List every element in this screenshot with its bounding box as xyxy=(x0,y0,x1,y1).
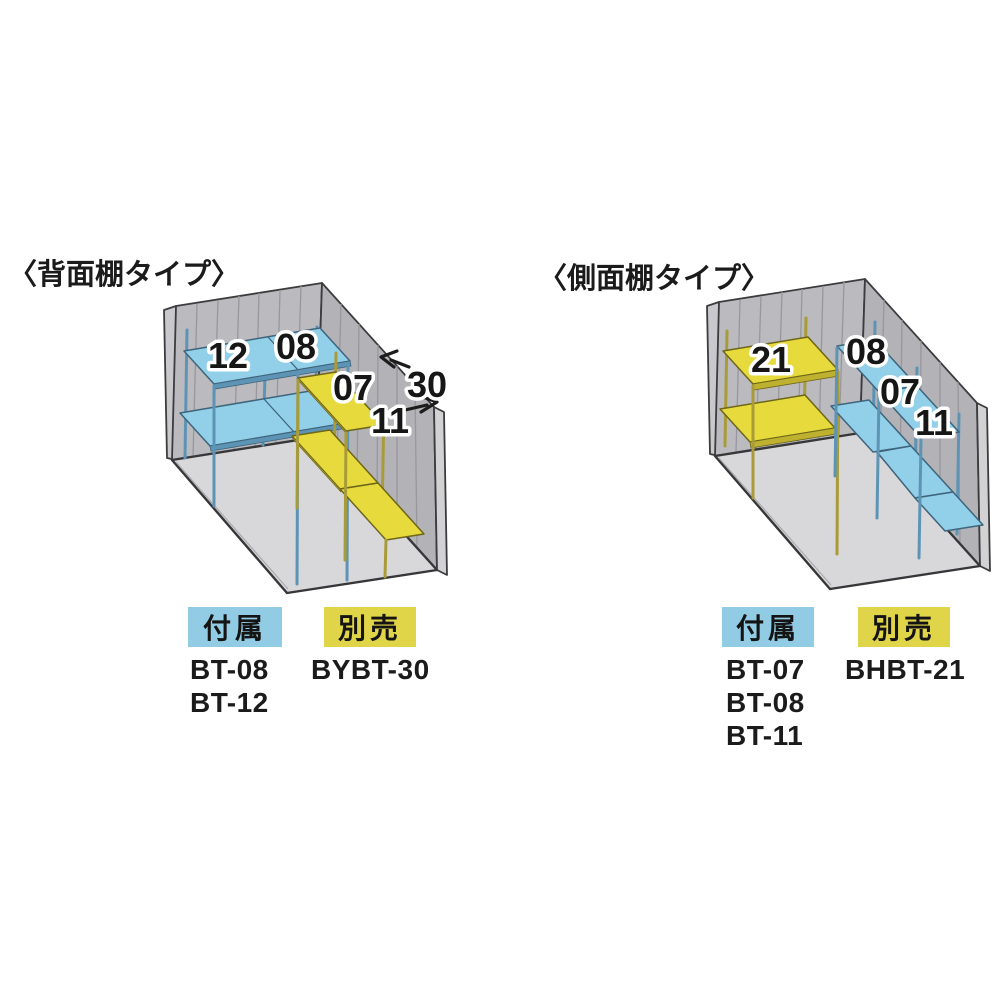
included-codes: BT-08 BT-12 xyxy=(190,653,269,719)
sold-separately-badge: 別売 xyxy=(324,607,416,647)
sold-separately-codes: BYBT-30 xyxy=(311,653,430,686)
included-code: BT-12 xyxy=(190,686,269,719)
sold-separately-badge: 別売 xyxy=(858,607,950,647)
included-badge: 付属 xyxy=(188,607,282,647)
sold-separately-code: BHBT-21 xyxy=(845,653,965,686)
shelf-label-07: 07 xyxy=(333,367,373,408)
shelf-diagrams-canvas: 12 08 07 11 30 xyxy=(0,0,1000,1000)
diagram-title-side-shelf: 〈側面棚タイプ〉 xyxy=(538,255,770,297)
included-code: BT-07 xyxy=(726,653,805,686)
shelf-label-11: 11 xyxy=(915,402,953,443)
sold-separately-codes: BHBT-21 xyxy=(845,653,965,686)
shelf-label-21: 21 xyxy=(751,339,791,380)
included-badge: 付属 xyxy=(722,607,814,647)
shelf-label-12: 12 xyxy=(208,335,248,376)
sold-separately-code: BYBT-30 xyxy=(311,653,430,686)
shelf-label-08: 08 xyxy=(276,326,316,367)
diagram-back-shelf: 12 08 07 11 30 xyxy=(164,283,447,593)
dimension-label-30: 30 xyxy=(407,364,447,405)
included-code: BT-08 xyxy=(190,653,269,686)
shelf-label-11: 11 xyxy=(371,400,409,441)
diagram-title-back-shelf: 〈背面棚タイプ〉 xyxy=(8,251,240,293)
included-codes: BT-07 BT-08 BT-11 xyxy=(726,653,805,752)
diagram-side-shelf: 21 08 07 11 xyxy=(707,279,990,589)
included-code: BT-11 xyxy=(726,719,805,752)
shelf-label-08: 08 xyxy=(846,331,886,372)
included-code: BT-08 xyxy=(726,686,805,719)
page: 12 08 07 11 30 xyxy=(0,0,1000,1000)
